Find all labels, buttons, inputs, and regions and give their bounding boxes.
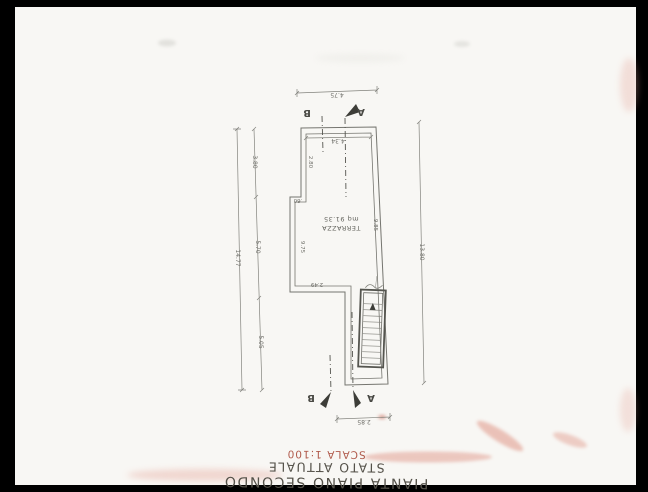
floor-plan-drawing: B A B A 4.75 4.34 14.77 3.80 5.70 bbox=[0, 0, 648, 492]
section-markers: B A B A bbox=[303, 103, 375, 408]
dim-inner-left-upper: 2.80 bbox=[307, 156, 313, 169]
dim-inner-right: 9.85 bbox=[372, 219, 378, 232]
dim-bottom-left-wall: 2.49 bbox=[310, 281, 323, 287]
section-line-b-bottom bbox=[330, 355, 331, 392]
section-flag-icon bbox=[353, 390, 361, 408]
dim-left-seg3: 5.05 bbox=[257, 335, 264, 349]
gray-smudge bbox=[158, 40, 176, 47]
dim-left-seg2: 5.70 bbox=[254, 240, 261, 254]
dim-inner-left: 9.75 bbox=[299, 241, 305, 254]
title-block: PIANTA PIANO SECONDO STATO ATTUALE SCALA… bbox=[196, 448, 456, 491]
pink-mark bbox=[551, 429, 588, 451]
room-label-group: TERRAZZA mq 91.35 bbox=[322, 215, 362, 232]
section-label-b: B bbox=[307, 392, 315, 403]
stair-top-scribble bbox=[365, 284, 382, 288]
section-line-b-top bbox=[322, 116, 323, 152]
dimension-lines bbox=[233, 86, 426, 423]
dim-left-total: 14.77 bbox=[234, 249, 241, 266]
pink-edge-smudge bbox=[620, 58, 638, 112]
section-label-a: A bbox=[357, 106, 365, 117]
gray-streak bbox=[315, 54, 405, 62]
dim-jog: .60 bbox=[293, 197, 302, 203]
section-a-top: A bbox=[345, 104, 365, 197]
dimension-labels: 4.75 4.34 14.77 3.80 5.70 5.05 13.80 .60… bbox=[234, 91, 425, 425]
section-line-a-bottom bbox=[352, 312, 353, 390]
section-a-bottom: A bbox=[352, 312, 375, 408]
pink-mark bbox=[474, 417, 526, 456]
stair-leader-line bbox=[375, 276, 376, 288]
section-b-bottom: B bbox=[307, 355, 331, 408]
section-label-b: B bbox=[303, 107, 311, 118]
pink-edge-smudge bbox=[620, 388, 636, 432]
gray-smudge bbox=[454, 41, 470, 47]
room-area: mq 91.35 bbox=[323, 215, 358, 223]
section-line-a-top bbox=[345, 118, 346, 197]
section-label-a: A bbox=[367, 392, 375, 403]
section-flag-icon bbox=[310, 103, 322, 115]
section-flag-icon bbox=[320, 392, 331, 408]
plan-wall-outline-inner bbox=[295, 133, 382, 379]
drawing-title: PIANTA PIANO SECONDO bbox=[196, 473, 456, 491]
dim-left-seg1: 3.80 bbox=[251, 155, 258, 169]
dim-top-inner: 4.34 bbox=[331, 137, 345, 144]
dim-right-total: 13.80 bbox=[418, 243, 425, 260]
staircase bbox=[358, 276, 386, 368]
dim-top-outer: 4.75 bbox=[330, 91, 344, 98]
room-name: TERRAZZA bbox=[322, 224, 362, 232]
dim-bottom: 2.85 bbox=[357, 418, 371, 425]
